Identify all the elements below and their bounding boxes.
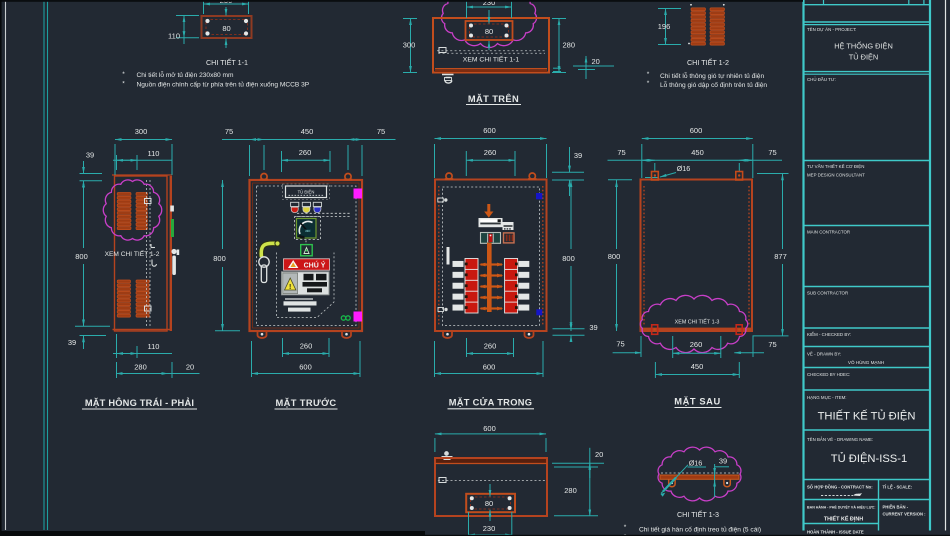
svg-text:Ø16: Ø16 (689, 459, 703, 468)
svg-text:39: 39 (574, 151, 582, 160)
svg-text:75: 75 (225, 127, 233, 136)
svg-text:877: 877 (774, 252, 787, 261)
svg-text:75: 75 (616, 340, 624, 349)
svg-text:XEM CHI TIẾT 1-3: XEM CHI TIẾT 1-3 (675, 319, 720, 326)
svg-text:HẠNG MỤC - ITEM:: HẠNG MỤC - ITEM: (807, 395, 847, 400)
svg-text:Chi tiết lỗ mở tủ điện 230x80: Chi tiết lỗ mở tủ điện 230x80 mm (137, 70, 235, 79)
svg-text:260: 260 (484, 342, 497, 351)
svg-text:VẼ - DRAWN BY:: VẼ - DRAWN BY: (807, 352, 841, 357)
svg-text:Chi tiết giá hàn cố định treo: Chi tiết giá hàn cố định treo tủ điện (5… (639, 525, 761, 534)
svg-text:VÕ HÙNG MẠNH: VÕ HÙNG MẠNH (848, 359, 884, 365)
svg-text:TỈ LỆ - SCALE:: TỈ LỆ - SCALE: (883, 485, 913, 490)
svg-text:280: 280 (563, 41, 576, 50)
svg-text:39: 39 (68, 338, 76, 347)
svg-text:TÊN BẢN VẼ - DRAWING NAME:: TÊN BẢN VẼ - DRAWING NAME: (807, 437, 873, 442)
svg-text:80: 80 (222, 24, 230, 33)
svg-text:80: 80 (485, 27, 493, 36)
svg-text:CHI TIẾT 1-1: CHI TIẾT 1-1 (206, 57, 248, 67)
svg-text:450: 450 (301, 127, 314, 136)
svg-text:600: 600 (483, 363, 496, 372)
svg-text:MEP DESIGN CONSULTANT: MEP DESIGN CONSULTANT (807, 173, 865, 178)
svg-text:75: 75 (617, 148, 625, 157)
svg-text:450: 450 (691, 362, 704, 371)
svg-text:KIỂM - CHECKED BY:: KIỂM - CHECKED BY: (807, 332, 851, 337)
svg-text:20: 20 (595, 450, 603, 459)
svg-text:230: 230 (305, 229, 310, 233)
svg-text:20: 20 (592, 57, 600, 66)
svg-text:TƯ VẤN THIẾT KẾ CƠ ĐIỆN: TƯ VẤN THIẾT KẾ CƠ ĐIỆN (807, 164, 864, 169)
svg-text:HOÀN THÀNH - ISSUE DATE: HOÀN THÀNH - ISSUE DATE (807, 530, 864, 535)
svg-text:MAIN CONTRACTOR: MAIN CONTRACTOR (807, 230, 850, 235)
svg-text:600: 600 (690, 126, 703, 135)
svg-text:MẶT TRƯỚC: MẶT TRƯỚC (275, 397, 336, 408)
svg-text:MẶT TRÊN: MẶT TRÊN (468, 93, 519, 104)
svg-text:110: 110 (148, 342, 160, 351)
svg-text:CHỦ ĐẦU TƯ:: CHỦ ĐẦU TƯ: (807, 77, 836, 82)
svg-text:39: 39 (589, 323, 597, 332)
svg-text:TỦ ĐIỆN-ISS-1: TỦ ĐIỆN-ISS-1 (831, 452, 907, 465)
svg-text:Chi tiết lỗ thông gió tự nhiên: Chi tiết lỗ thông gió tự nhiên tủ điện (660, 71, 764, 80)
svg-text:800: 800 (608, 252, 621, 261)
svg-text:HỆ THỐNG ĐIỆN: HỆ THỐNG ĐIỆN (834, 41, 893, 51)
svg-text:280: 280 (134, 363, 147, 372)
svg-text:CHI TIẾT 1-2: CHI TIẾT 1-2 (687, 57, 729, 67)
svg-text:Lỗ thông gió dập cố định trên: Lỗ thông gió dập cố định trên tủ điện (660, 80, 767, 89)
svg-text:260: 260 (484, 148, 497, 157)
svg-text:TỦ ĐIỆN: TỦ ĐIỆN (849, 53, 879, 62)
svg-text:TÊN DỰ ÁN - PROJECT:: TÊN DỰ ÁN - PROJECT: (807, 27, 856, 32)
svg-text:39: 39 (719, 457, 727, 466)
svg-text:800: 800 (562, 254, 575, 263)
svg-text:!: ! (289, 284, 291, 291)
svg-text:BAN HÀNH - PHÊ DUYỆT VÀ HIỆU L: BAN HÀNH - PHÊ DUYỆT VÀ HIỆU LỰC: (807, 505, 875, 510)
svg-text:600: 600 (483, 126, 496, 135)
svg-text:CURRENT VERSION :: CURRENT VERSION : (883, 512, 926, 517)
svg-text:39: 39 (86, 151, 94, 160)
svg-text:CHÚ Ý: CHÚ Ý (304, 261, 326, 270)
svg-text:MẶT HÔNG TRÁI - PHẢI: MẶT HÔNG TRÁI - PHẢI (85, 397, 194, 408)
svg-text:TỦ ĐIỆN: TỦ ĐIỆN (298, 189, 315, 194)
svg-text:196: 196 (658, 22, 671, 31)
svg-text:800: 800 (75, 252, 88, 261)
svg-text:CHECKED BY HDEC:: CHECKED BY HDEC: (807, 372, 850, 377)
svg-text:75: 75 (377, 127, 385, 136)
svg-text:SUB CONTRACTOR: SUB CONTRACTOR (807, 291, 848, 296)
svg-text:300: 300 (135, 127, 148, 136)
svg-text:PHIÊN BẢN -: PHIÊN BẢN - (883, 505, 909, 510)
svg-text:110: 110 (168, 32, 180, 41)
svg-text:75: 75 (768, 148, 776, 157)
svg-text:260: 260 (690, 340, 703, 349)
svg-text:450: 450 (691, 148, 704, 157)
svg-text:THIẾT KẾ ĐỊNH: THIẾT KẾ ĐỊNH (824, 516, 863, 523)
svg-text:MẶT SAU: MẶT SAU (674, 397, 721, 407)
svg-text:80: 80 (485, 499, 493, 508)
svg-text:260: 260 (300, 342, 313, 351)
svg-text:THIẾT KẾ TỦ ĐIỆN: THIẾT KẾ TỦ ĐIỆN (818, 410, 916, 423)
svg-text:280: 280 (564, 486, 577, 495)
svg-text:600: 600 (299, 363, 312, 372)
svg-text:230: 230 (483, 524, 496, 533)
svg-text:260: 260 (299, 148, 312, 157)
svg-text:20: 20 (186, 363, 194, 372)
svg-text:110: 110 (148, 149, 160, 158)
svg-text:300: 300 (403, 41, 416, 50)
svg-text:SỐ HỢP ĐỒNG - CONTRACT No:: SỐ HỢP ĐỒNG - CONTRACT No: (807, 485, 873, 490)
svg-text:Ø16: Ø16 (677, 164, 691, 173)
svg-text:Nguồn điện chính cấp từ phía t: Nguồn điện chính cấp từ phía trên tủ điệ… (137, 80, 310, 89)
svg-text:800: 800 (213, 254, 226, 263)
svg-text:600: 600 (483, 424, 496, 433)
svg-text:75: 75 (768, 340, 776, 349)
svg-text:MẶT CỬA TRONG: MẶT CỬA TRONG (449, 397, 533, 408)
svg-text:CHI TIẾT 1-3: CHI TIẾT 1-3 (677, 509, 719, 519)
